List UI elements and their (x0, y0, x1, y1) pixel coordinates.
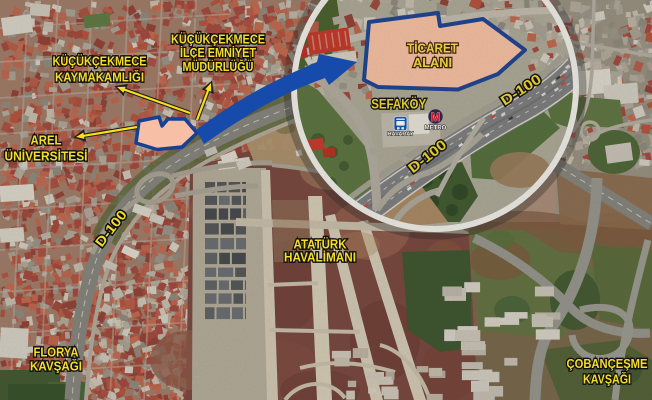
svg-text:KÜÇÜKÇEKMECE: KÜÇÜKÇEKMECE (53, 54, 147, 69)
svg-text:İLÇE EMNİYET: İLÇE EMNİYET (180, 45, 256, 60)
svg-text:MÜDÜRLÜĞÜ: MÜDÜRLÜĞÜ (183, 59, 254, 74)
svg-text:AREL: AREL (31, 133, 62, 148)
svg-text:KAYMAKAMLIĞI: KAYMAKAMLIĞI (55, 70, 144, 85)
svg-text:KAVŞAĞI: KAVŞAĞI (30, 359, 82, 374)
svg-text:HAVALİMANI: HAVALİMANI (284, 249, 356, 264)
svg-text:ÜNİVERSİTESİ: ÜNİVERSİTESİ (5, 149, 88, 164)
svg-text:ÇOBANÇEŞME: ÇOBANÇEŞME (567, 356, 648, 371)
svg-text:FLORYA: FLORYA (34, 345, 80, 360)
svg-text:KAVŞAĞI: KAVŞAĞI (583, 372, 631, 387)
